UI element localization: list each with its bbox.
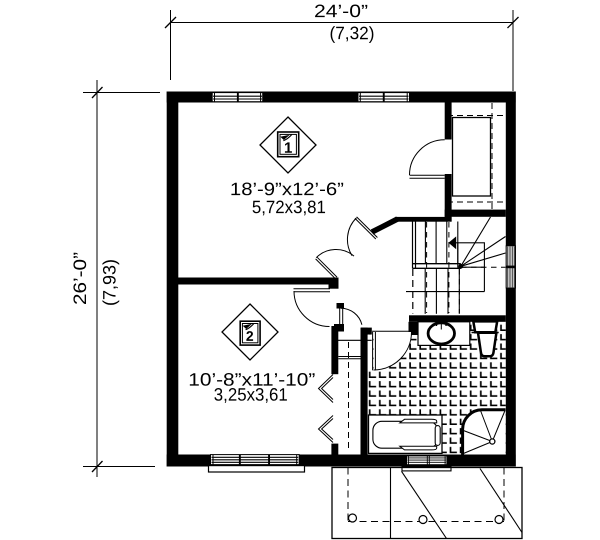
svg-text:1: 1 — [284, 140, 292, 157]
svg-text:3,25x3,61: 3,25x3,61 — [214, 385, 288, 405]
svg-text:24’-0”: 24’-0” — [314, 1, 368, 21]
svg-text:26’-0”: 26’-0” — [70, 252, 90, 305]
svg-text:5,72x3,81: 5,72x3,81 — [252, 197, 326, 217]
svg-text:(7,93): (7,93) — [100, 259, 120, 306]
svg-text:2: 2 — [246, 328, 254, 344]
svg-text:(7,32): (7,32) — [329, 23, 374, 43]
